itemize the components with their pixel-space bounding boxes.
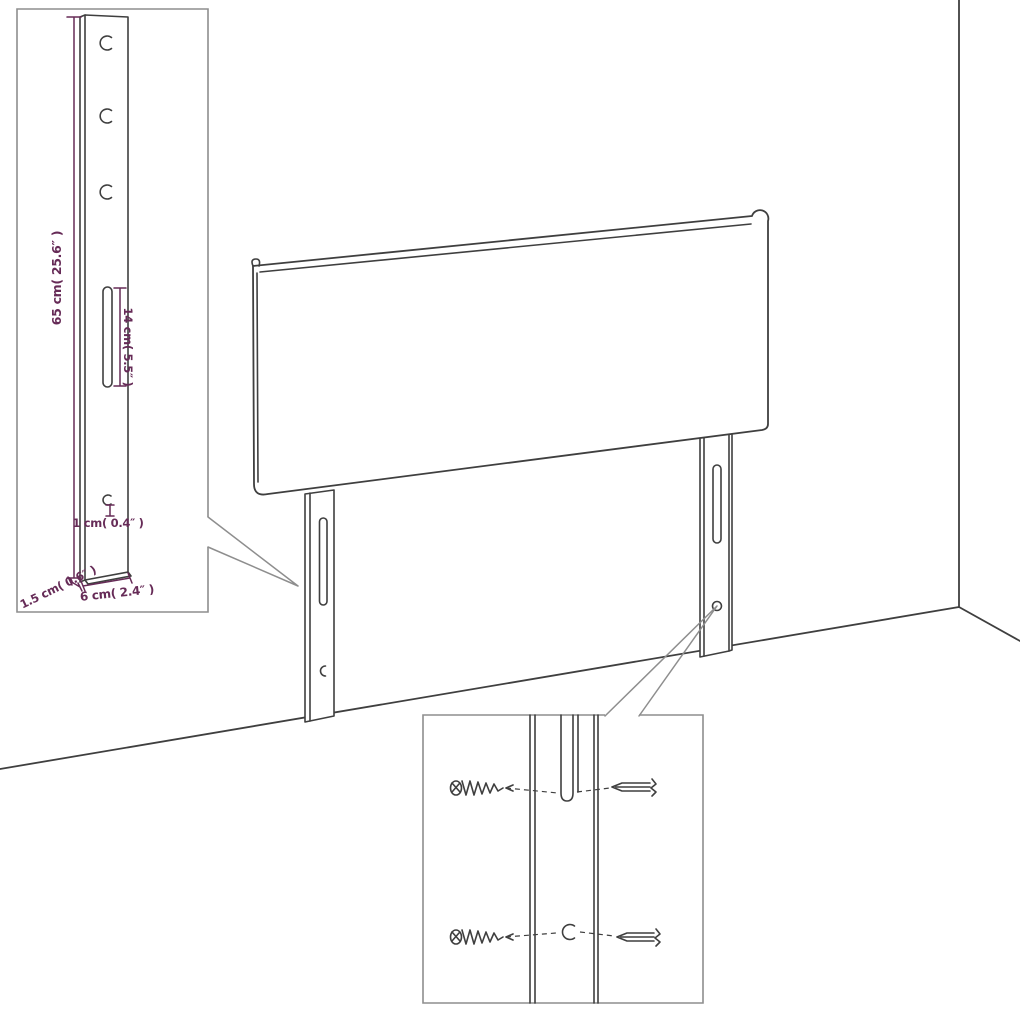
floor-line-right	[959, 607, 1020, 641]
callout-lines	[208, 517, 717, 716]
detail-post	[80, 15, 131, 584]
panel-outline	[253, 210, 768, 494]
label-slot-length: 14 cm( 5.5″ )	[121, 308, 135, 387]
leg-detail-inset: 65 cm( 25.6″ ) 14 cm( 5.5″ ) 1 cm( 0.4″ …	[17, 9, 208, 612]
diagram-stage: 65 cm( 25.6″ ) 14 cm( 5.5″ ) 1 cm( 0.4″ …	[0, 0, 1020, 1020]
hardware-detail-box-border	[423, 715, 703, 1003]
hardware-detail-inset	[423, 715, 703, 1003]
panel-left-inner-line	[257, 273, 258, 482]
headboard-diagram: 65 cm( 25.6″ ) 14 cm( 5.5″ ) 1 cm( 0.4″ …	[0, 0, 1020, 1020]
label-hole-size: 1 cm( 0.4″ )	[72, 516, 143, 530]
headboard-panel	[252, 210, 768, 494]
callout-leg-detail	[208, 517, 298, 586]
headboard-left-leg	[305, 490, 334, 722]
callout-hardware-detail	[605, 606, 717, 716]
label-total-height: 65 cm( 25.6″ )	[49, 231, 64, 326]
